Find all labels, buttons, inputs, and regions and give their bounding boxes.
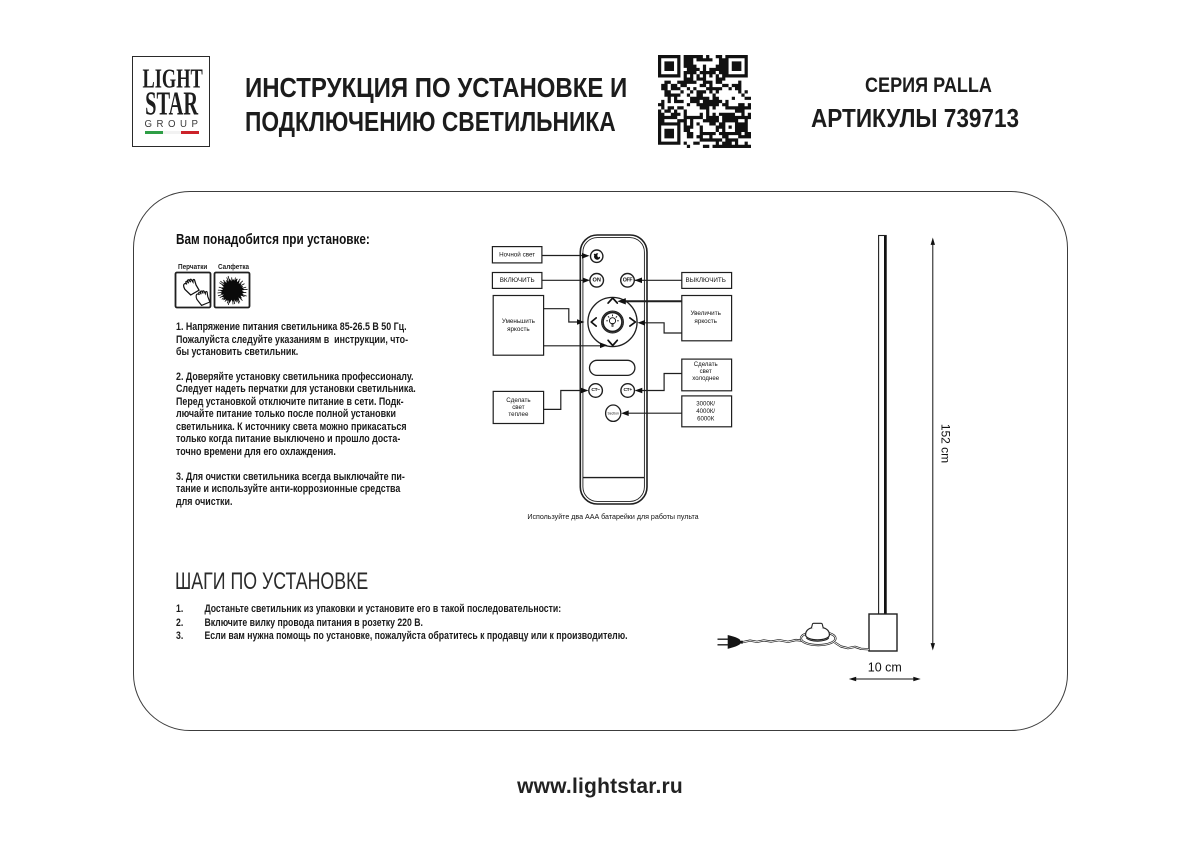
- svg-text:ВКЛЮЧИТЬ: ВКЛЮЧИТЬ: [500, 277, 535, 284]
- svg-text:холоднее: холоднее: [692, 375, 719, 382]
- svg-text:4000К/: 4000К/: [696, 408, 715, 415]
- svg-text:OFF: OFF: [623, 277, 633, 283]
- svg-text:Ночной свет: Ночной свет: [499, 250, 535, 258]
- svg-text:теплее: теплее: [508, 411, 529, 418]
- svg-text:CT+: CT+: [623, 387, 632, 393]
- svg-text:Сделать: Сделать: [506, 397, 530, 404]
- svg-text:CT−: CT−: [591, 387, 600, 393]
- svg-text:яркость: яркость: [507, 326, 530, 333]
- svg-text:Section: Section: [608, 411, 619, 415]
- svg-text:ВЫКЛЮЧИТЬ: ВЫКЛЮЧИТЬ: [685, 277, 725, 284]
- svg-text:3000К/: 3000К/: [696, 401, 715, 408]
- svg-text:свет: свет: [512, 404, 525, 411]
- svg-text:ON: ON: [593, 277, 601, 283]
- svg-text:яркость: яркость: [694, 318, 717, 325]
- svg-text:Уменьшить: Уменьшить: [502, 318, 536, 325]
- svg-text:10 cm: 10 cm: [868, 661, 902, 675]
- svg-text:6000К: 6000К: [697, 415, 715, 422]
- svg-text:Увеличить: Увеличить: [691, 310, 722, 317]
- svg-text:Используйте два ААА батарейки: Используйте два ААА батарейки для работы…: [527, 513, 698, 521]
- svg-text:152 cm: 152 cm: [939, 424, 953, 463]
